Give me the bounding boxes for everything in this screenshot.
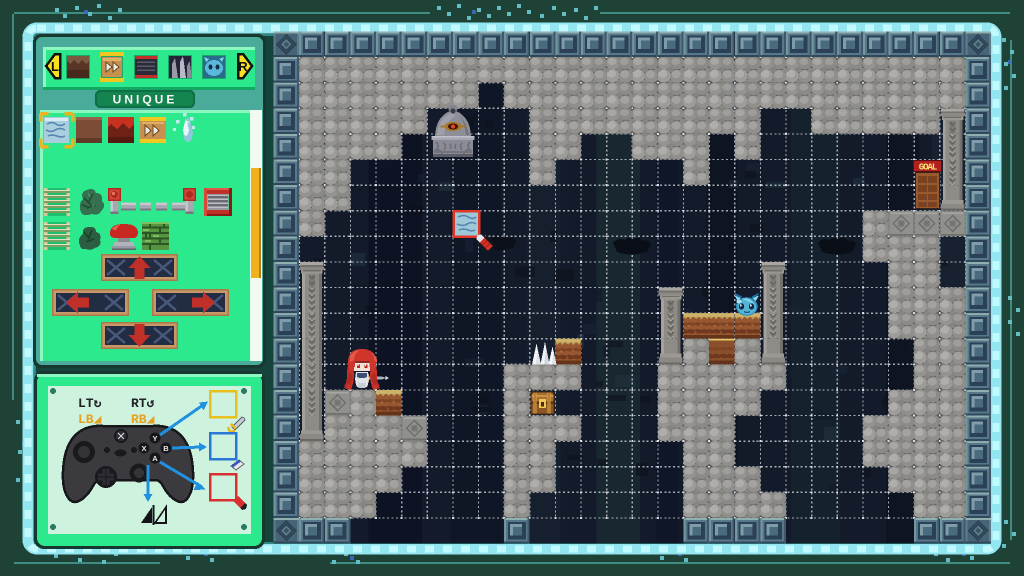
svg-text:Y: Y <box>152 434 157 443</box>
svg-text:GOAL: GOAL <box>919 163 937 173</box>
svg-text:L: L <box>51 59 59 74</box>
svg-text:R: R <box>238 59 248 74</box>
svg-text:UNIQUE: UNIQUE <box>113 93 178 107</box>
svg-text:A: A <box>152 454 158 463</box>
svg-text:LT↻: LT↻ <box>78 396 102 411</box>
svg-text:X: X <box>141 444 146 453</box>
svg-text:RT↺: RT↺ <box>131 396 155 411</box>
svg-text:B: B <box>163 444 169 453</box>
